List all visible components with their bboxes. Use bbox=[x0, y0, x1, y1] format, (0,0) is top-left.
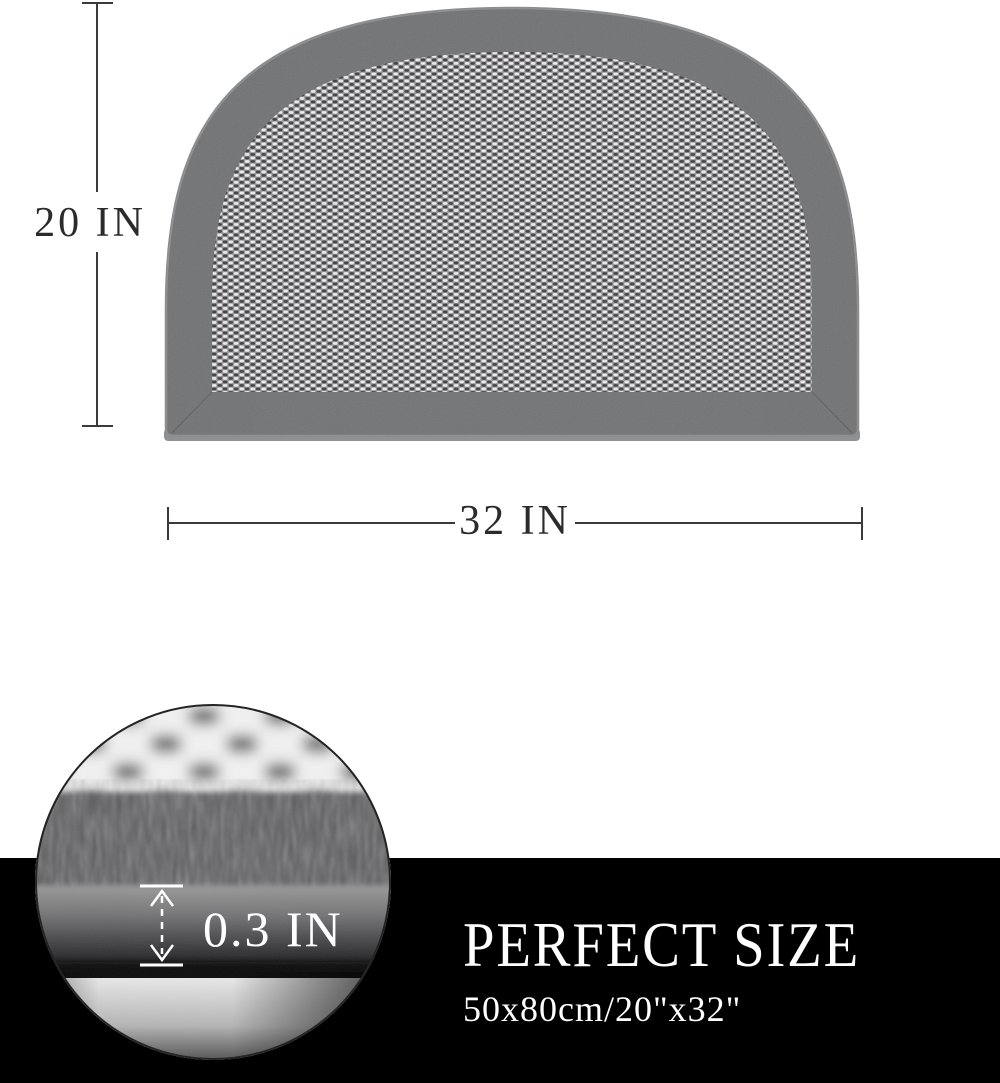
product-dimension-image: 20 IN bbox=[0, 0, 1000, 1083]
thickness-label: 0.3 IN bbox=[203, 901, 343, 957]
width-dim-label: 32 IN bbox=[453, 500, 577, 542]
height-dim-line-lower bbox=[96, 252, 98, 425]
width-dim-right-tick bbox=[861, 507, 863, 540]
height-dim-label: 20 IN bbox=[28, 202, 152, 244]
mat-fabric-grain bbox=[162, 2, 862, 444]
width-dim-line-right bbox=[575, 522, 862, 524]
banner-title: PERFECT SIZE bbox=[463, 914, 860, 977]
banner-subtitle: 50x80cm/20"x32" bbox=[463, 988, 741, 1031]
width-dim-line-left bbox=[167, 522, 455, 524]
mat-photo bbox=[162, 2, 862, 444]
height-dim-line-upper bbox=[96, 2, 98, 192]
detail-photo bbox=[33, 702, 393, 1062]
thickness-detail-circle: 0.3 IN bbox=[33, 702, 393, 1062]
height-dim-bottom-tick bbox=[82, 425, 113, 427]
